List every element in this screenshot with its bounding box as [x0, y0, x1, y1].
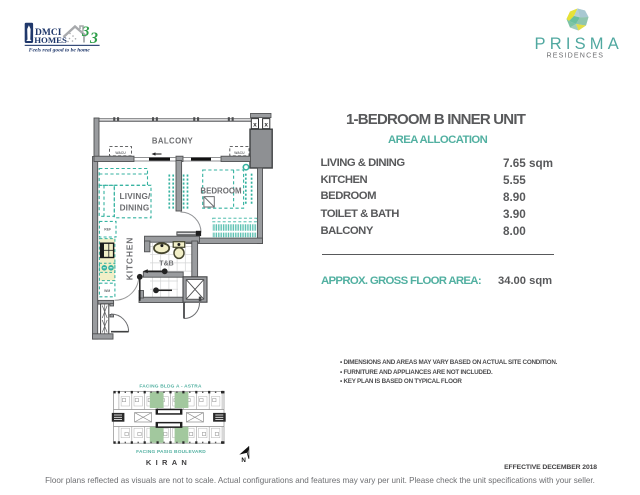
svg-text:LIVING/: LIVING/: [120, 192, 151, 201]
svg-text:WM: WM: [104, 289, 110, 293]
svg-text:N: N: [241, 457, 246, 464]
svg-text:T&B: T&B: [159, 260, 173, 267]
svg-text:BALCONY: BALCONY: [152, 136, 194, 145]
svg-text:REF: REF: [104, 228, 111, 232]
svg-text:KITCHEN: KITCHEN: [125, 237, 135, 280]
svg-text:DINING: DINING: [120, 204, 150, 213]
svg-text:WACU: WACU: [115, 151, 126, 155]
svg-text:BEDROOM: BEDROOM: [200, 186, 242, 195]
svg-text:FACING PASIG BOULEVARD: FACING PASIG BOULEVARD: [136, 449, 206, 455]
svg-text:FACING BLDG A - ASTRA: FACING BLDG A - ASTRA: [139, 384, 202, 390]
svg-text:WACU: WACU: [234, 151, 245, 155]
svg-text:x: x: [264, 122, 268, 129]
svg-text:KIRAN: KIRAN: [146, 458, 191, 467]
svg-text:x: x: [253, 122, 257, 129]
